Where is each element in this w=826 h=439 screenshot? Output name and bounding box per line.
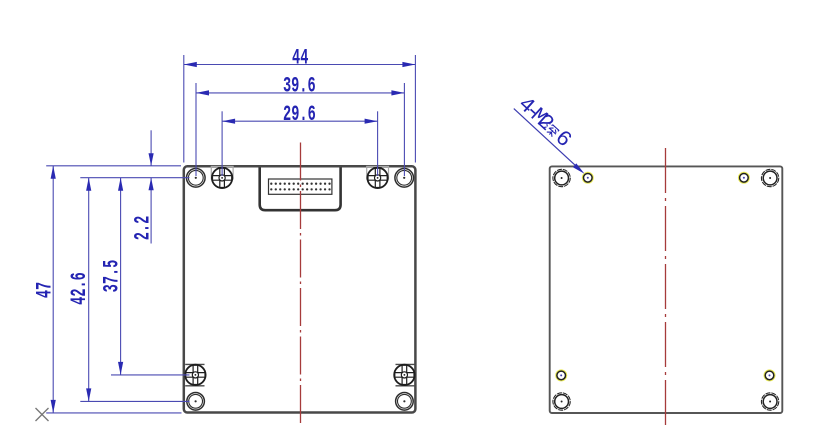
svg-text:42.6: 42.6 xyxy=(68,272,92,305)
svg-text:37.5: 37.5 xyxy=(100,260,124,293)
svg-text:44: 44 xyxy=(292,46,308,70)
svg-text:39.6: 39.6 xyxy=(283,75,316,99)
svg-text:29.6: 29.6 xyxy=(283,103,316,127)
svg-text:2.2: 2.2 xyxy=(132,216,156,241)
svg-text:47: 47 xyxy=(34,282,58,298)
